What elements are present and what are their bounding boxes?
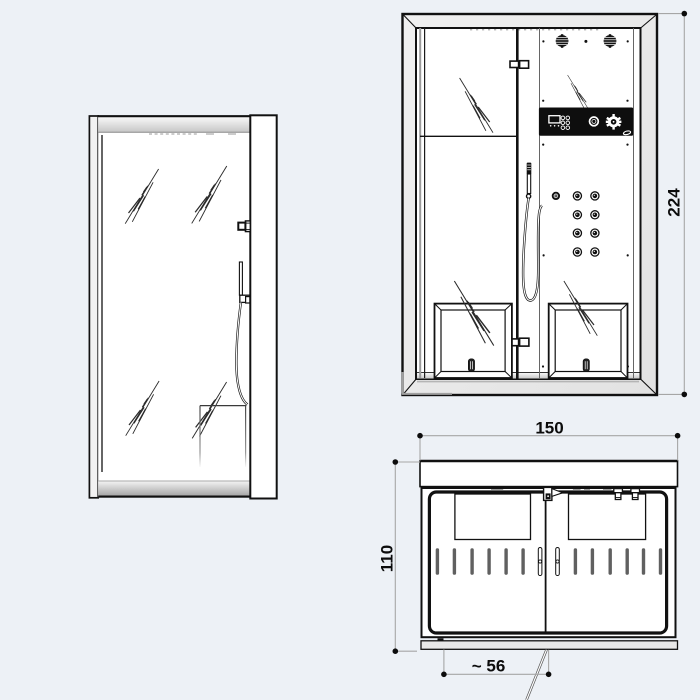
svg-text:150: 150 xyxy=(535,418,563,437)
svg-text:224: 224 xyxy=(665,188,684,217)
svg-text:110: 110 xyxy=(378,545,397,572)
svg-text:~ 56: ~ 56 xyxy=(472,657,506,676)
